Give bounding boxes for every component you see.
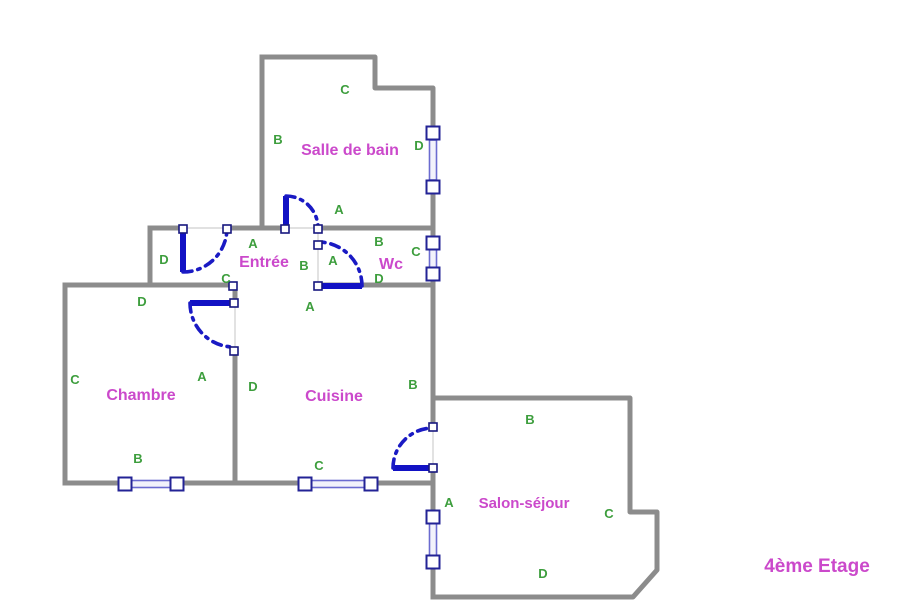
door-jamb	[281, 225, 289, 233]
window-salon-sejour	[427, 511, 440, 569]
door-jamb	[314, 225, 322, 233]
wall-label-salle-de-bain-b: B	[273, 132, 282, 147]
wall-label-chambre-b: B	[133, 451, 142, 466]
floor-label: 4ème Etage	[764, 556, 870, 577]
room-label-entree: Entrée	[239, 254, 289, 271]
door-jamb	[314, 241, 322, 249]
window-jamb	[427, 556, 440, 569]
door-jamb	[429, 464, 437, 472]
wall-label-salon-sejour-c: C	[604, 506, 614, 521]
wall-label-entree-c: C	[221, 271, 231, 286]
floor-plan-canvas: Salle de bainABCDEntréeABCDWcABCDChambre…	[0, 0, 900, 616]
wall-label-wc-b: B	[374, 234, 383, 249]
door-chambre	[190, 303, 234, 347]
window-glazing	[430, 140, 437, 180]
door-jamb	[230, 299, 238, 307]
door-swing-arc	[318, 242, 362, 286]
window-chambre	[119, 478, 184, 491]
window-glazing	[131, 481, 171, 488]
door-jamb	[429, 423, 437, 431]
wall-label-salon-sejour-a: A	[444, 495, 454, 510]
window-jamb	[427, 127, 440, 140]
wall-label-entree-b: B	[299, 258, 308, 273]
wall-label-salle-de-bain-c: C	[340, 82, 350, 97]
window-cuisine	[299, 478, 378, 491]
floor-plan-page: { "floor_label": { "text": "4ème Etage",…	[0, 0, 900, 616]
window-jamb	[427, 511, 440, 524]
window-jamb	[365, 478, 378, 491]
room-label-cuisine: Cuisine	[305, 388, 363, 405]
door-jamb	[314, 282, 322, 290]
wall-label-entree-a: A	[248, 236, 258, 251]
door-jamb	[230, 347, 238, 355]
door-cuisine-salon	[393, 428, 433, 468]
window-jamb	[171, 478, 184, 491]
window-wc	[427, 237, 440, 281]
wall-label-salle-de-bain-d: D	[414, 138, 423, 153]
door-swing-arc	[393, 428, 433, 468]
door-jamb	[223, 225, 231, 233]
room-label-salle-de-bain: Salle de bain	[301, 142, 399, 159]
wall-label-wc-d: D	[374, 271, 383, 286]
wall-label-chambre-a: A	[197, 369, 207, 384]
window-jamb	[427, 268, 440, 281]
wall-label-cuisine-a: A	[305, 299, 315, 314]
wall-label-wc-c: C	[411, 244, 421, 259]
wall-label-cuisine-c: C	[314, 458, 324, 473]
room-label-salon-sejour: Salon-séjour	[479, 495, 570, 512]
window-glazing	[430, 523, 437, 556]
wall-label-wc-a: A	[328, 253, 338, 268]
door-swing-arc	[190, 303, 234, 347]
wall-label-chambre-d: D	[137, 294, 146, 309]
window-jamb	[427, 181, 440, 194]
wall-label-chambre-c: C	[70, 372, 80, 387]
door-salle-de-bain	[286, 196, 318, 228]
door-jamb	[179, 225, 187, 233]
window-salle-de-bain	[427, 127, 440, 194]
window-jamb	[299, 478, 312, 491]
labels-layer: Salle de bainABCDEntréeABCDWcABCDChambre…	[70, 82, 870, 581]
window-glazing	[311, 481, 365, 488]
window-jamb	[119, 478, 132, 491]
door-entree-front	[183, 228, 227, 272]
door-wc	[318, 242, 362, 286]
wall-label-cuisine-b: B	[408, 377, 417, 392]
door-swing-arc	[286, 196, 318, 228]
wall-label-cuisine-d: D	[248, 379, 257, 394]
window-jamb	[427, 237, 440, 250]
room-label-chambre: Chambre	[106, 387, 175, 404]
window-glazing	[430, 249, 437, 268]
wall-label-salon-sejour-b: B	[525, 412, 534, 427]
wall-label-salle-de-bain-a: A	[334, 202, 344, 217]
exterior-walls	[65, 57, 657, 597]
door-swing-arc	[183, 228, 227, 272]
wall-label-entree-d: D	[159, 252, 168, 267]
wall-label-salon-sejour-d: D	[538, 566, 547, 581]
